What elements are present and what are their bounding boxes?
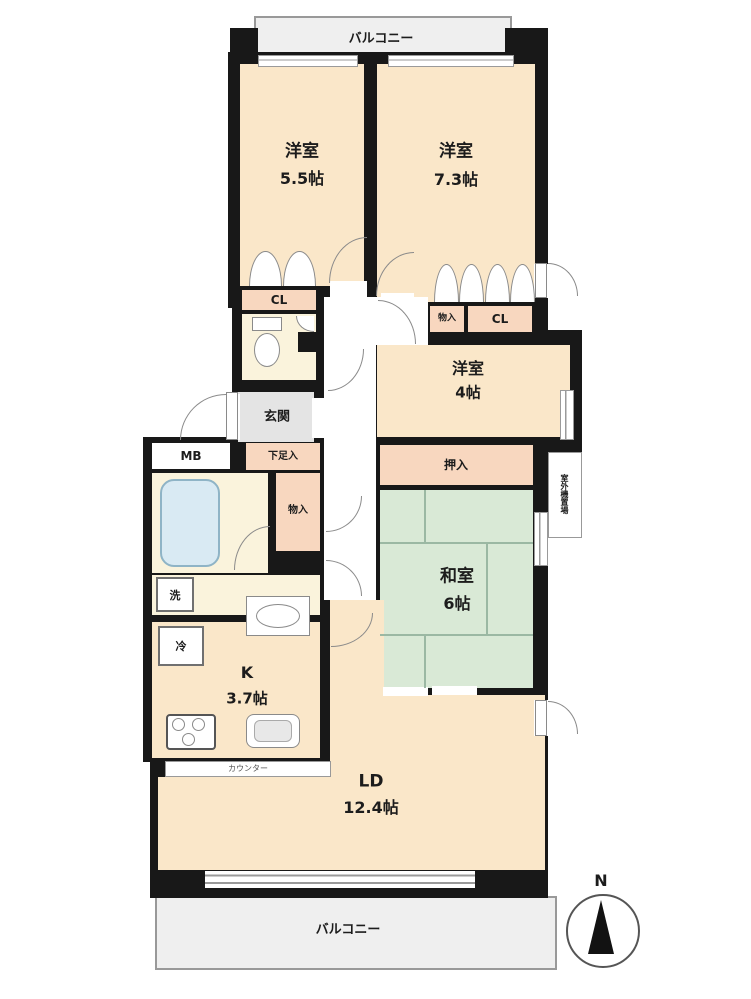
counter-label: カウンター <box>228 765 268 773</box>
oshiire-label: 押入 <box>444 459 468 471</box>
stove-burner-3 <box>182 733 195 746</box>
balcony-bottom-label: バルコニー <box>316 924 381 937</box>
stove-burner-1 <box>172 718 185 731</box>
refrigerator-box: 冷 <box>158 626 204 666</box>
japanese6-size: 6帖 <box>443 596 470 612</box>
western73-size: 7.3帖 <box>434 172 478 188</box>
opening-entrance-hall <box>312 398 326 438</box>
storage-mid-label: 物入 <box>288 506 308 516</box>
wall-corner-topleft <box>230 28 258 58</box>
toilet-tank <box>252 317 282 331</box>
western4-name: 洋室 <box>452 361 484 377</box>
room-ld-bottomleft <box>158 777 338 870</box>
front-door-leaf <box>226 392 238 440</box>
kitchen-size: 3.7帖 <box>226 692 268 707</box>
japanese6-name: 和室 <box>440 569 474 586</box>
ld-name: LD <box>359 774 384 791</box>
bathtub <box>160 479 220 567</box>
closet-left-label: CL <box>271 294 287 306</box>
tatami-line <box>424 490 426 544</box>
western55-size: 5.5帖 <box>280 171 324 187</box>
toilet-wall-chunk <box>298 332 316 352</box>
meter-box-label: MB <box>180 450 201 462</box>
compass-north-label: N <box>594 873 607 889</box>
washer-label: 洗 <box>170 587 181 603</box>
ld-size: 12.4帖 <box>343 800 398 816</box>
refrigerator-label: 冷 <box>176 638 187 654</box>
wall-corner-topright <box>505 28 548 58</box>
front-door-swing <box>180 394 226 440</box>
washbasin-bowl <box>256 604 300 628</box>
western73-name: 洋室 <box>439 144 473 161</box>
window-ld-bottom <box>205 871 475 888</box>
shoe-cabinet-label: 下足入 <box>268 452 298 462</box>
balcony-top-label: バルコニー <box>349 33 414 46</box>
tatami-line <box>424 634 426 688</box>
door-opening-western55 <box>330 281 367 309</box>
storage-top-label: 物入 <box>438 315 456 324</box>
washer-box: 洗 <box>156 577 194 612</box>
door-swing-ld-right <box>548 701 578 734</box>
window-western55-top <box>258 55 358 67</box>
toilet-bowl <box>254 333 280 367</box>
compass-needle-icon <box>588 900 614 954</box>
tatami-line <box>380 542 533 544</box>
sliding-opening-japanese-1 <box>383 687 428 696</box>
outdoor-unit-label: 室外機置場 <box>560 474 568 514</box>
window-japanese-right <box>534 512 548 566</box>
western4-size: 4帖 <box>455 386 480 401</box>
closet-right-label: CL <box>492 313 508 325</box>
stove-burner-2 <box>192 718 205 731</box>
floor-plan: 洗 冷 バルコニー 洋室 5.5帖 洋室 7.3帖 CL 物入 CL 洋室 4帖… <box>0 0 751 999</box>
kitchen-sink-basin <box>254 720 292 742</box>
entrance-label: 玄関 <box>264 411 290 424</box>
sliding-opening-japanese-2 <box>432 686 477 695</box>
tatami-line <box>380 634 533 636</box>
tatami-line <box>486 542 488 636</box>
western55-name: 洋室 <box>285 144 319 161</box>
room-japanese-6 <box>380 490 533 688</box>
door-swing-western73-right <box>548 263 578 296</box>
window-western4-right <box>560 390 574 440</box>
room-ld-main <box>380 695 545 870</box>
kitchen-name: K <box>241 665 253 681</box>
door-leaf-ld-right <box>535 700 547 736</box>
door-leaf-western73-right <box>535 263 547 298</box>
window-western73-top <box>388 55 514 67</box>
